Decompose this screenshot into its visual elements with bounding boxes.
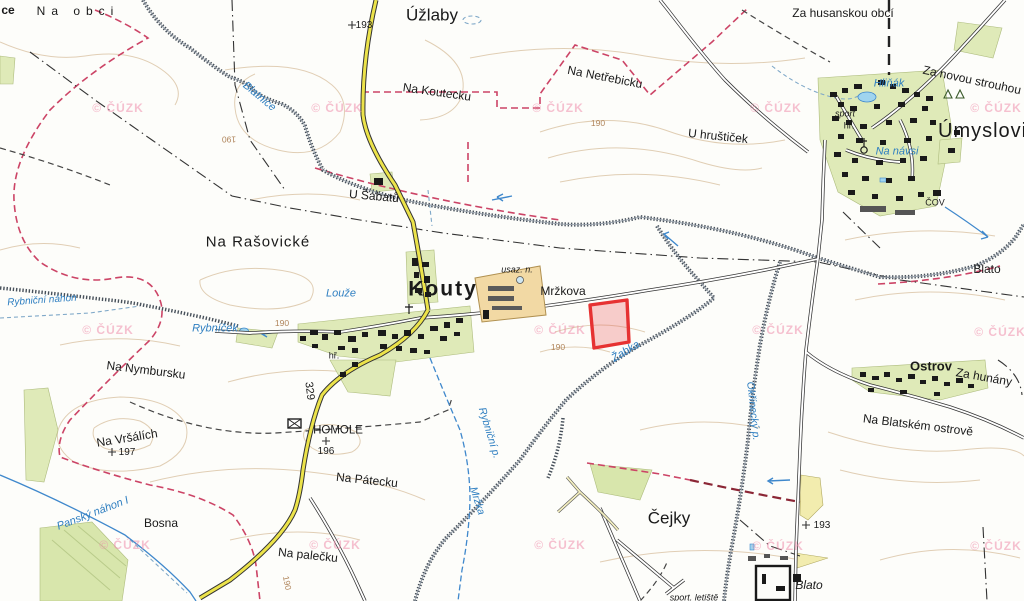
highlighted-parcel[interactable]	[590, 300, 629, 348]
boundary-dark-red	[690, 480, 800, 502]
homole-building	[288, 419, 301, 428]
tree-icons	[944, 90, 964, 98]
industrial-area-usaz	[475, 266, 546, 322]
stream-rybnicni-p	[430, 358, 470, 601]
map-graphics	[0, 0, 1024, 601]
channel-zabka	[415, 226, 714, 601]
blato-buildings	[748, 554, 801, 600]
map-viewport[interactable]: ceNa obciÚžlaby193Za husanskou obcíZa no…	[0, 0, 1024, 601]
channel-rybnicni-nahon	[0, 288, 238, 326]
